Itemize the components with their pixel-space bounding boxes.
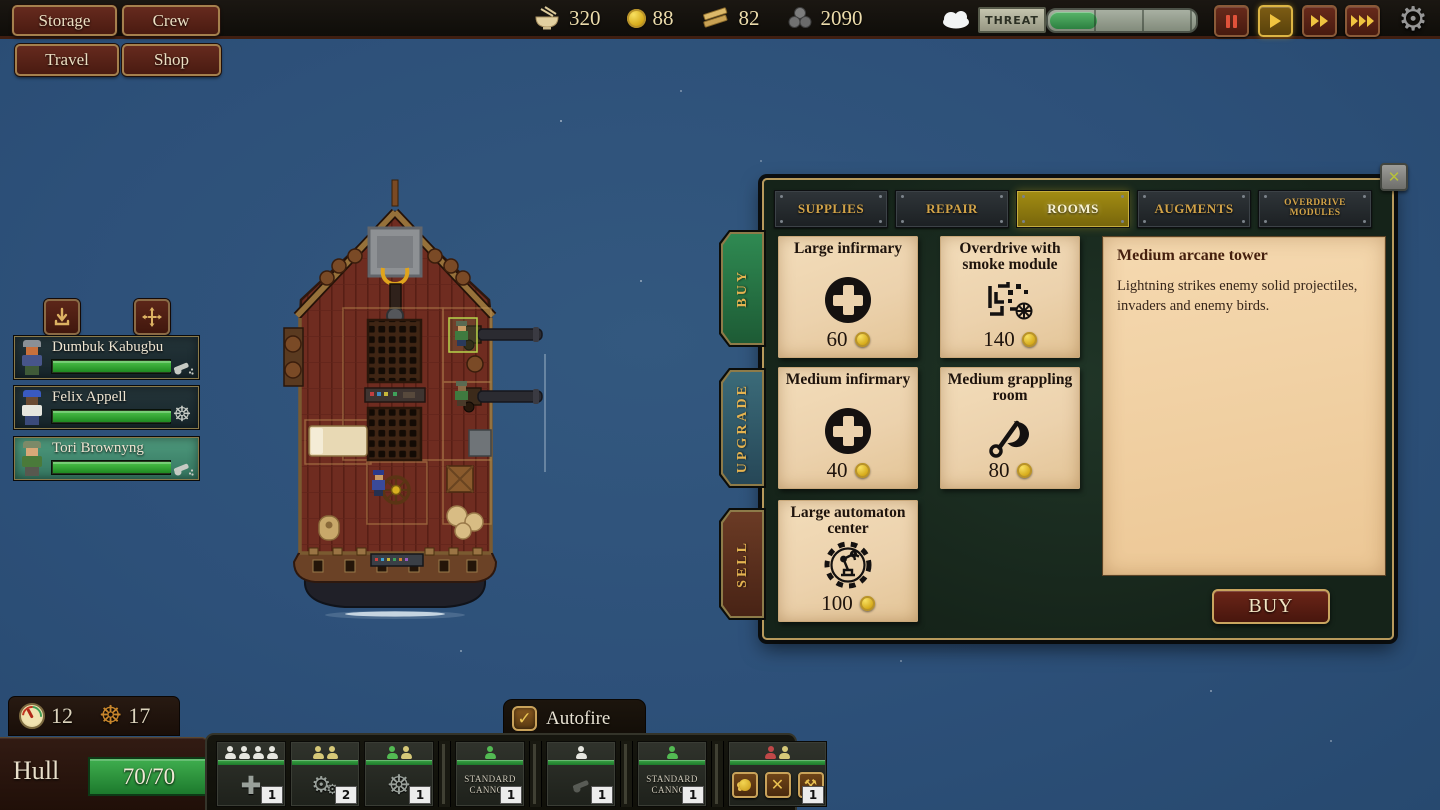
deck-divider xyxy=(620,741,633,807)
health-bar xyxy=(51,409,171,424)
cannon-role-icon xyxy=(169,455,195,477)
top-bar: Storage Crew 320 88 xyxy=(0,0,1440,39)
gold-coin-icon xyxy=(627,9,646,28)
hull-label: Hull xyxy=(13,756,59,786)
crew-capacity-stat: ☸ 17 xyxy=(99,701,169,731)
room-slot-cannon-empty[interactable]: 1 xyxy=(546,741,616,807)
gold-coin-icon xyxy=(1022,332,1037,347)
pause-button[interactable] xyxy=(1214,5,1249,37)
fast-forward-icon xyxy=(1311,15,1319,27)
tab-overdrive-modules[interactable]: Overdrive Modules xyxy=(1258,190,1372,228)
send-below-icon xyxy=(52,307,72,327)
room-slot-engine[interactable]: ⚙ ⚙ 2 xyxy=(290,741,360,807)
shop-item-medium-infirmary[interactable]: Medium infirmary 40 xyxy=(778,367,918,489)
autofire-checkbox[interactable] xyxy=(512,706,537,731)
automaton-gear-icon xyxy=(820,537,876,593)
deck-divider xyxy=(438,741,451,807)
avatar xyxy=(19,390,45,425)
health-bar xyxy=(51,359,171,374)
gold-coin-icon xyxy=(855,463,870,478)
cloud-icon xyxy=(936,8,976,30)
grappling-hook-icon xyxy=(985,410,1035,460)
storage-button[interactable]: Storage xyxy=(12,5,117,36)
shop-item-medium-grappling[interactable]: Medium grappling room 80 xyxy=(940,367,1080,489)
crew-name: Tori Brownyng xyxy=(52,440,144,457)
crew-row-tori[interactable]: Tori Brownyng xyxy=(14,437,199,480)
rooms-bar: ✚ 1 ⚙ ⚙ 2 ☸ 1 xyxy=(205,733,797,810)
ship-stats-plate: 12 ☸ 17 xyxy=(8,696,180,736)
travel-button[interactable]: Travel xyxy=(15,44,119,76)
mast xyxy=(392,180,398,206)
fastest-icon xyxy=(1351,15,1358,27)
buy-button[interactable]: BUY xyxy=(1212,589,1330,624)
tab-repair[interactable]: Repair xyxy=(895,190,1009,228)
water-specks xyxy=(560,120,562,122)
detail-description: Lightning strikes enemy solid projectile… xyxy=(1117,277,1371,316)
shop-panel: ✕ Buy Upgrade Sell Supplies Repair Rooms… xyxy=(762,178,1394,640)
move-crew-icon xyxy=(141,306,163,328)
threat-bar xyxy=(1046,8,1198,33)
crew-row-felix[interactable]: Felix Appell ☸ xyxy=(14,386,199,429)
melee-attack-button[interactable]: ✕ xyxy=(765,772,791,798)
avatar xyxy=(19,340,45,375)
crew-name: Felix Appell xyxy=(52,389,127,406)
crew-button[interactable]: Crew xyxy=(122,5,220,36)
food-value: 320 xyxy=(569,6,601,31)
infirmary-cross-icon xyxy=(825,408,871,454)
threat-segments xyxy=(1048,10,1196,31)
settings-gear-icon[interactable]: ⚙ xyxy=(1394,0,1432,37)
gold-value: 88 xyxy=(653,6,674,31)
play-icon xyxy=(1270,14,1281,28)
side-tab-upgrade[interactable]: Upgrade xyxy=(719,368,766,488)
room-slot-deck[interactable]: ✕ ⚒ 1 xyxy=(728,741,827,807)
player-ship[interactable] xyxy=(283,168,563,623)
close-icon[interactable]: ✕ xyxy=(1380,163,1408,191)
room-slot-cannon-1[interactable]: STANDARD CANNON 1 xyxy=(455,741,525,807)
health-bar xyxy=(51,460,171,475)
gold-coin-icon xyxy=(855,332,870,347)
cannonball-value: 2090 xyxy=(821,6,863,31)
crew-name: Dumbuk Kabugbu xyxy=(52,339,163,356)
fastest-button[interactable] xyxy=(1345,5,1380,37)
speed-stat: 12 xyxy=(19,703,89,729)
room-slot-infirmary[interactable]: ✚ 1 xyxy=(216,741,286,807)
cannon-role-icon xyxy=(169,354,195,376)
food-bowl-icon xyxy=(532,6,562,31)
ship-wheel-icon: ☸ xyxy=(387,770,411,801)
deck-divider xyxy=(711,741,724,807)
ship-wheel-icon: ☸ xyxy=(99,701,122,731)
gold-coin-icon xyxy=(1017,463,1032,478)
room-slot-helm[interactable]: ☸ 1 xyxy=(364,741,434,807)
medical-cross-icon: ✚ xyxy=(241,771,262,800)
ranged-attack-icon xyxy=(739,779,751,791)
shop-item-large-automaton[interactable]: Large automaton center 100 xyxy=(778,500,918,622)
hull-panel: Hull 70/70 xyxy=(0,737,210,810)
keel xyxy=(305,580,485,607)
game-screen: Storage Crew 320 88 xyxy=(0,0,1440,810)
shop-tabs: Supplies Repair Rooms Augments Overdrive… xyxy=(774,190,1372,228)
ship-wheel-role-icon: ☸ xyxy=(169,404,195,426)
move-crew-button[interactable] xyxy=(134,299,170,335)
hull-value: 70/70 xyxy=(90,759,208,794)
deck-divider xyxy=(529,741,542,807)
planks-value: 82 xyxy=(739,6,760,31)
crew-sprite-gunner-1[interactable] xyxy=(449,318,477,352)
metal-shelf xyxy=(469,430,491,456)
shop-item-large-infirmary[interactable]: Large infirmary 60 xyxy=(778,236,918,358)
food-resource: 320 xyxy=(532,6,601,31)
overdrive-circuit-icon xyxy=(984,278,1036,324)
fast-forward-button[interactable] xyxy=(1302,5,1337,37)
planks-icon xyxy=(700,6,732,30)
cargo-grate-1 xyxy=(368,320,421,382)
tab-augments[interactable]: Augments xyxy=(1137,190,1251,228)
stern-console xyxy=(371,554,423,566)
cannonball-resource: 2090 xyxy=(786,5,863,31)
melee-attack-icon: ✕ xyxy=(771,777,784,793)
shop-button[interactable]: Shop xyxy=(122,44,221,76)
cannonballs-icon xyxy=(786,5,814,31)
side-tab-buy[interactable]: Buy xyxy=(719,230,766,347)
detail-title: Medium arcane tower xyxy=(1117,247,1268,265)
gold-resource: 88 xyxy=(627,6,674,31)
room-slot-cannon-2[interactable]: STANDARD CANNON 1 xyxy=(637,741,707,807)
side-tab-sell[interactable]: Sell xyxy=(719,508,766,620)
play-button[interactable] xyxy=(1258,5,1293,37)
send-crew-below-button[interactable] xyxy=(44,299,80,335)
tab-rooms[interactable]: Rooms xyxy=(1016,190,1130,228)
resource-group: 320 88 82 xyxy=(532,0,863,36)
pause-icon xyxy=(1226,15,1238,28)
helm-wheel[interactable] xyxy=(383,477,409,503)
crew-row-dumbuk[interactable]: Dumbuk Kabugbu xyxy=(14,336,199,379)
threat-label: THREAT xyxy=(978,7,1046,33)
gold-coin-icon xyxy=(860,596,875,611)
gauge-icon xyxy=(19,703,45,729)
ranged-attack-button[interactable] xyxy=(732,772,758,798)
avatar xyxy=(19,441,45,476)
cargo-grate-2 xyxy=(368,408,421,460)
planks-resource: 82 xyxy=(700,6,760,31)
shop-item-overdrive-smoke[interactable]: Overdrive with smoke module 140 xyxy=(940,236,1080,358)
tab-supplies[interactable]: Supplies xyxy=(774,190,888,228)
autofire-label: Autofire xyxy=(546,708,610,730)
hull-bar: 70/70 xyxy=(88,757,210,796)
infirmary-cross-icon xyxy=(825,277,871,323)
item-detail-panel: Medium arcane tower Lightning strikes en… xyxy=(1102,236,1386,576)
